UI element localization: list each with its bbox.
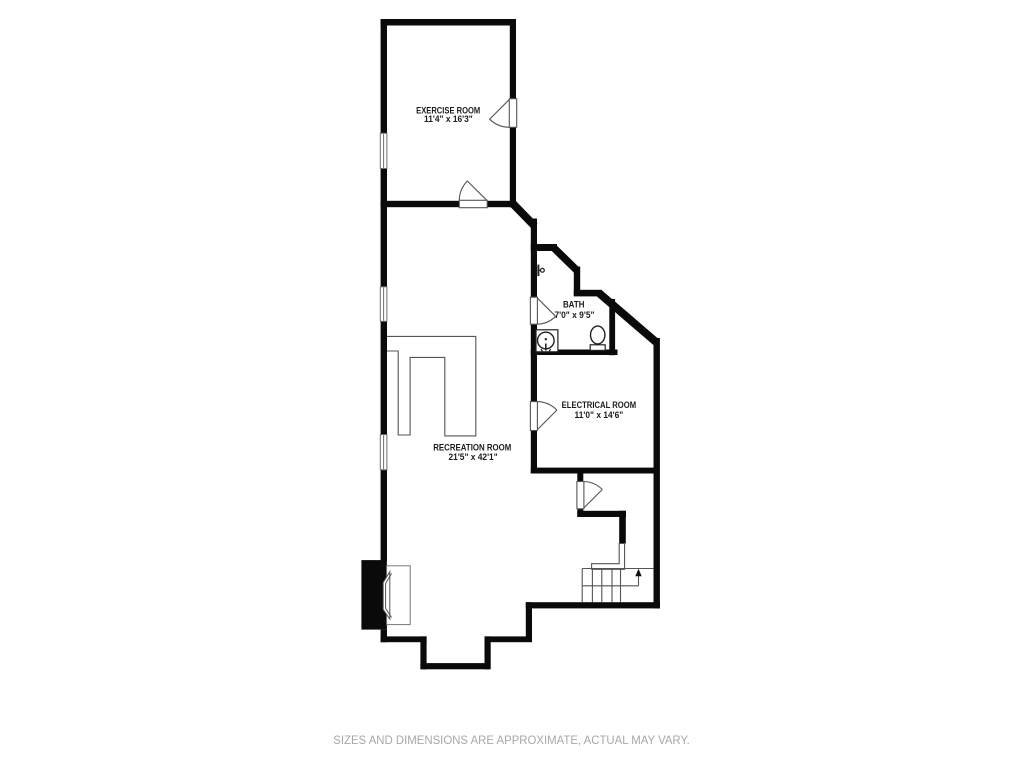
svg-text:11'0" x 14'6": 11'0" x 14'6" [575,410,624,420]
svg-text:7'0" x 9'5": 7'0" x 9'5" [554,310,594,320]
svg-text:SIZES AND DIMENSIONS ARE APPRO: SIZES AND DIMENSIONS ARE APPROXIMATE, AC… [333,733,690,747]
svg-text:ELECTRICAL ROOM: ELECTRICAL ROOM [562,400,637,410]
svg-text:21'5" x 42'1": 21'5" x 42'1" [449,452,498,462]
svg-text:11'4" x 16'3": 11'4" x 16'3" [424,114,473,124]
svg-text:BATH: BATH [563,299,585,309]
